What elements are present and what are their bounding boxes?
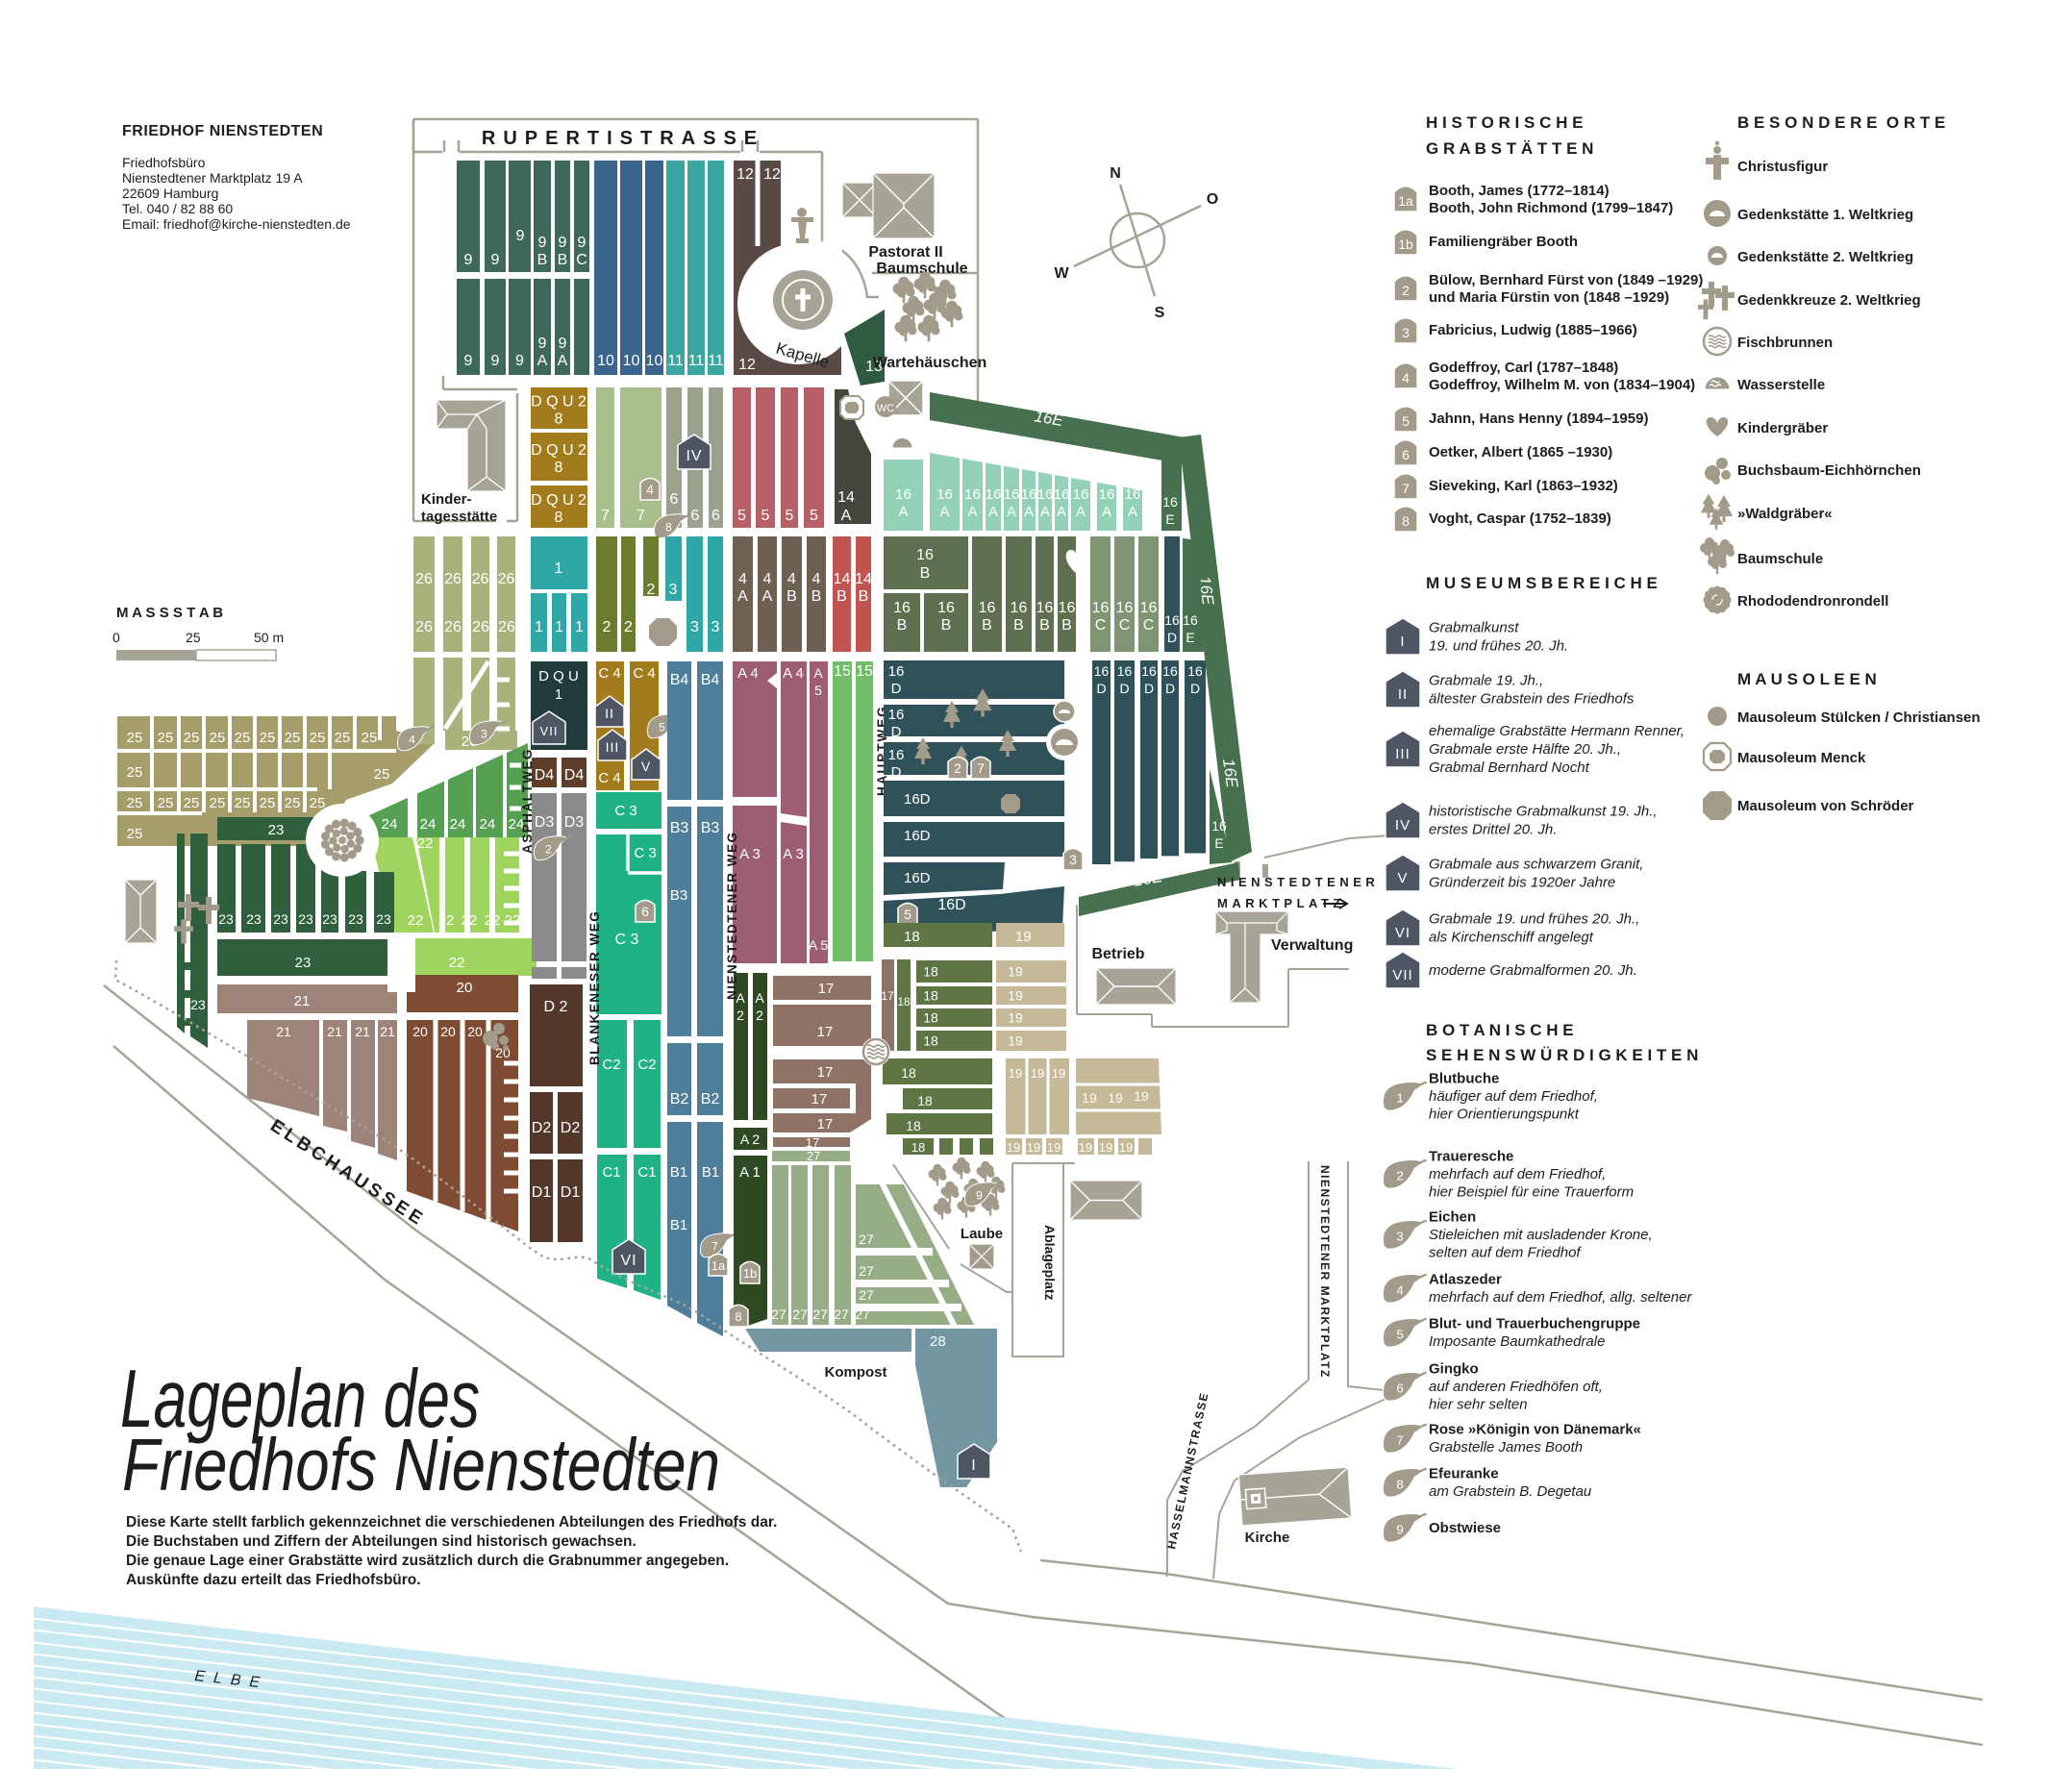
svg-text:23: 23 [298, 911, 313, 927]
svg-text:C: C [576, 252, 587, 268]
svg-text:Obstwiese: Obstwiese [1429, 1520, 1501, 1536]
svg-text:O: O [1207, 191, 1218, 208]
svg-text:10: 10 [623, 353, 640, 369]
svg-text:4: 4 [646, 482, 654, 497]
svg-text:Jahnn, Hans Henny (1894–1959): Jahnn, Hans Henny (1894–1959) [1429, 411, 1648, 427]
svg-text:historistische Grabmalkunst 19: historistische Grabmalkunst 19. Jh., [1429, 804, 1658, 820]
svg-text:M A S S S T A B: M A S S S T A B [116, 605, 223, 621]
svg-text:NIENSTEDTENER WEG: NIENSTEDTENER WEG [725, 831, 739, 1000]
svg-text:26: 26 [498, 619, 515, 635]
svg-text:26: 26 [472, 571, 489, 587]
svg-text:16: 16 [895, 486, 911, 503]
svg-text:Godeffroy, Carl (1787–1848): Godeffroy, Carl (1787–1848) [1429, 360, 1618, 376]
svg-text:24: 24 [420, 816, 437, 833]
svg-text:Booth, John Richmond (1799–184: Booth, John Richmond (1799–1847) [1429, 200, 1673, 216]
svg-text:C2: C2 [602, 1057, 620, 1073]
svg-text:19: 19 [1008, 988, 1023, 1004]
svg-text:1b: 1b [1398, 236, 1413, 252]
svg-text:B2: B2 [701, 1091, 720, 1108]
svg-text:H I S T O R I S C H E: H I S T O R I S C H E [1426, 113, 1583, 132]
svg-text:hier Beispiel für eine Trauerf: hier Beispiel für eine Trauerform [1429, 1183, 1634, 1200]
svg-text:8: 8 [555, 411, 563, 428]
svg-text:C 4: C 4 [598, 770, 620, 786]
svg-text:5: 5 [1402, 413, 1410, 429]
svg-text:9: 9 [976, 1189, 983, 1203]
svg-text:Traueresche: Traueresche [1429, 1148, 1513, 1164]
svg-text:25: 25 [260, 730, 276, 746]
svg-text:B4: B4 [670, 672, 689, 688]
svg-text:III: III [606, 739, 620, 755]
svg-text:16: 16 [1140, 600, 1158, 616]
svg-text:16: 16 [1099, 486, 1115, 503]
svg-text:16: 16 [1125, 486, 1141, 503]
svg-text:18: 18 [917, 1093, 933, 1108]
svg-text:4: 4 [763, 571, 772, 587]
svg-text:A 5: A 5 [809, 937, 828, 953]
svg-text:3: 3 [690, 619, 699, 635]
svg-text:2: 2 [624, 619, 633, 635]
svg-text:25: 25 [235, 795, 251, 811]
svg-text:27: 27 [859, 1287, 874, 1303]
svg-text:A 4: A 4 [783, 665, 804, 682]
svg-text:Auskünfte dazu erteilt das Fri: Auskünfte dazu erteilt das Friedhofsbüro… [126, 1572, 421, 1588]
svg-text:tagesstätte: tagesstätte [421, 509, 497, 525]
svg-text:ASPHALTWEG: ASPHALTWEG [520, 748, 535, 854]
svg-text:B1: B1 [670, 1164, 687, 1181]
svg-text:FRIEDHOF NIENSTEDTEN: FRIEDHOF NIENSTEDTEN [122, 123, 323, 139]
svg-text:D2: D2 [532, 1120, 552, 1136]
svg-text:V: V [1397, 870, 1408, 886]
svg-text:25: 25 [210, 730, 226, 746]
svg-text:Wartehäuschen: Wartehäuschen [873, 355, 987, 371]
svg-text:26: 26 [415, 571, 433, 587]
svg-text:6: 6 [711, 508, 720, 524]
svg-text:25: 25 [184, 795, 200, 811]
svg-text:6: 6 [1396, 1381, 1403, 1396]
svg-text:B: B [1061, 617, 1072, 634]
svg-text:0: 0 [112, 630, 120, 645]
svg-text:16: 16 [1187, 663, 1203, 679]
svg-text:Imposante Baumkathedrale: Imposante Baumkathedrale [1429, 1333, 1605, 1350]
svg-text:3: 3 [1396, 1230, 1403, 1244]
svg-text:22: 22 [462, 912, 478, 929]
svg-text:B: B [1039, 617, 1050, 634]
svg-text:25: 25 [335, 730, 351, 746]
svg-text:16: 16 [1037, 486, 1054, 503]
svg-text:23: 23 [246, 911, 262, 927]
svg-text:9: 9 [464, 353, 473, 369]
svg-text:C 4: C 4 [598, 665, 620, 682]
svg-text:21: 21 [355, 1024, 370, 1039]
svg-text:16: 16 [888, 707, 905, 723]
svg-text:25: 25 [374, 766, 390, 783]
svg-text:19: 19 [1031, 1066, 1044, 1081]
svg-text:27: 27 [807, 1149, 820, 1163]
svg-text:A: A [755, 990, 764, 1006]
svg-text:9: 9 [491, 353, 500, 369]
svg-text:17: 17 [817, 1064, 834, 1081]
svg-text:Sieveking, Karl (1863–1932): Sieveking, Karl (1863–1932) [1429, 478, 1618, 494]
svg-text:II: II [605, 706, 614, 721]
svg-text:selten auf dem Friedhof: selten auf dem Friedhof [1429, 1244, 1582, 1260]
svg-text:D3: D3 [535, 814, 555, 831]
svg-text:Kinder-: Kinder- [421, 491, 472, 508]
svg-text:Grabstelle James Booth: Grabstelle James Booth [1429, 1439, 1583, 1456]
svg-text:2: 2 [545, 843, 552, 857]
svg-text:23: 23 [190, 997, 206, 1012]
svg-text:9: 9 [464, 252, 473, 268]
svg-text:15: 15 [856, 663, 873, 680]
svg-text:E: E [1186, 630, 1194, 645]
svg-text:19: 19 [1009, 1066, 1022, 1081]
svg-text:28: 28 [930, 1333, 946, 1350]
svg-text:WC: WC [877, 403, 894, 414]
svg-text:9: 9 [559, 235, 567, 251]
svg-text:A: A [1007, 504, 1016, 520]
svg-text:24: 24 [480, 816, 496, 833]
svg-text:C 3: C 3 [634, 845, 656, 861]
svg-text:2: 2 [603, 619, 612, 635]
svg-text:A: A [967, 504, 977, 520]
svg-text:hier Orientierungspunkt: hier Orientierungspunkt [1429, 1106, 1580, 1122]
svg-text:M U S E U M S B E R E I C H E: M U S E U M S B E R E I C H E [1426, 574, 1658, 592]
svg-text:16: 16 [916, 547, 934, 563]
svg-text:A 4: A 4 [737, 665, 759, 682]
svg-text:19: 19 [1119, 1140, 1133, 1155]
svg-text:25: 25 [186, 630, 201, 645]
svg-text:16: 16 [1141, 663, 1157, 679]
svg-text:18: 18 [923, 1033, 938, 1049]
svg-text:C: C [1095, 617, 1107, 634]
svg-text:14: 14 [855, 571, 872, 587]
svg-text:Grabmale 19. und frühes 20. Jh: Grabmale 19. und frühes 20. Jh., [1429, 911, 1639, 928]
svg-text:3: 3 [711, 619, 720, 635]
svg-text:8: 8 [555, 510, 563, 526]
svg-text:19: 19 [1008, 964, 1023, 980]
svg-text:2: 2 [1402, 283, 1410, 298]
svg-text:22: 22 [438, 912, 455, 929]
svg-text:B3: B3 [701, 820, 720, 836]
svg-text:11: 11 [688, 353, 705, 369]
svg-text:ehemalige Grabstätte Hermann R: ehemalige Grabstätte Hermann Renner, [1429, 723, 1685, 739]
svg-text:Die Buchstaben und Ziffern der: Die Buchstaben und Ziffern der Abteilung… [126, 1533, 637, 1550]
svg-text:Rhododendronrondell: Rhododendronrondell [1737, 593, 1888, 610]
svg-text:1: 1 [555, 686, 562, 703]
svg-text:3: 3 [481, 728, 487, 741]
svg-text:Booth, James (1772–1814): Booth, James (1772–1814) [1429, 183, 1610, 199]
svg-text:20: 20 [467, 1024, 483, 1039]
svg-text:RUPERTISTRASSE: RUPERTISTRASSE [482, 128, 764, 149]
svg-text:M A U S O L E E N: M A U S O L E E N [1737, 670, 1877, 688]
svg-text:Buchsbaum-Eichhörnchen: Buchsbaum-Eichhörnchen [1737, 462, 1921, 479]
svg-text:2: 2 [756, 1008, 763, 1023]
svg-text:D: D [891, 724, 902, 740]
svg-text:2: 2 [1396, 1169, 1403, 1183]
svg-text:25: 25 [310, 730, 326, 746]
svg-text:D4: D4 [535, 767, 555, 784]
svg-text:25: 25 [235, 730, 251, 746]
svg-text:23: 23 [268, 822, 285, 838]
svg-text:B: B [836, 588, 847, 605]
svg-text:B2: B2 [670, 1091, 689, 1108]
svg-text:1a: 1a [1398, 193, 1413, 209]
svg-text:19: 19 [1015, 929, 1032, 945]
svg-text:27: 27 [834, 1307, 849, 1322]
svg-text:3: 3 [669, 582, 678, 598]
svg-text:B1: B1 [702, 1164, 719, 1181]
svg-text:16: 16 [1164, 612, 1180, 628]
svg-text:II: II [1398, 686, 1408, 703]
svg-text:1: 1 [575, 619, 584, 635]
svg-text:»Waldgräber«: »Waldgräber« [1737, 506, 1833, 522]
svg-text:18: 18 [906, 1118, 921, 1133]
svg-text:9: 9 [491, 252, 500, 268]
svg-text:1: 1 [535, 619, 543, 635]
svg-text:17: 17 [806, 1135, 819, 1150]
svg-text:6: 6 [691, 508, 700, 524]
svg-text:D: D [1165, 681, 1175, 696]
svg-text:Kindergräber: Kindergräber [1737, 420, 1828, 436]
svg-text:A: A [1040, 504, 1050, 520]
svg-text:A: A [558, 353, 568, 369]
svg-text:VII: VII [540, 724, 559, 738]
svg-text:Friedhofsbüro: Friedhofsbüro [122, 155, 206, 170]
svg-text:A: A [898, 504, 908, 520]
svg-text:12: 12 [763, 166, 781, 183]
svg-text:23: 23 [322, 911, 337, 927]
svg-text:19: 19 [1079, 1140, 1092, 1155]
svg-text:Eichen: Eichen [1429, 1208, 1476, 1225]
svg-text:G R A B S T Ä T T E N: G R A B S T Ä T T E N [1426, 139, 1593, 158]
svg-text:22609 Hamburg: 22609 Hamburg [122, 186, 218, 201]
svg-text:23: 23 [348, 911, 363, 927]
svg-text:IV: IV [1395, 817, 1410, 834]
svg-text:22: 22 [485, 912, 501, 929]
svg-text:Mausoleum Stülcken / Christian: Mausoleum Stülcken / Christiansen [1737, 709, 1981, 726]
svg-text:C2: C2 [637, 1057, 656, 1073]
svg-text:8: 8 [735, 1309, 741, 1324]
svg-text:Die genaue Lage einer Grabstät: Die genaue Lage einer Grabstätte wird zu… [126, 1553, 729, 1569]
svg-text:Kompost: Kompost [825, 1364, 887, 1381]
svg-text:Mausoleum von Schröder: Mausoleum von Schröder [1737, 798, 1914, 814]
svg-text:25: 25 [310, 795, 326, 811]
svg-text:BLANKENESER WEG: BLANKENESER WEG [587, 910, 602, 1065]
svg-text:Diese Karte stellt farblich ge: Diese Karte stellt farblich gekennzeichn… [126, 1514, 777, 1531]
svg-text:NIENSTEDTENER: NIENSTEDTENER [1217, 875, 1379, 889]
svg-text:8: 8 [1396, 1478, 1403, 1492]
svg-text:16D: 16D [937, 897, 965, 913]
svg-text:Tel. 040 / 82 88 60: Tel. 040 / 82 88 60 [122, 201, 233, 216]
svg-text:D1: D1 [561, 1184, 581, 1201]
svg-text:27: 27 [792, 1307, 808, 1322]
svg-text:16: 16 [1183, 612, 1198, 628]
svg-text:9: 9 [538, 336, 547, 352]
svg-text:5: 5 [786, 508, 794, 524]
svg-text:5: 5 [814, 683, 822, 698]
svg-text:Rose »Königin von Dänemark«: Rose »Königin von Dänemark« [1429, 1422, 1641, 1438]
svg-text:19: 19 [1082, 1090, 1097, 1106]
svg-text:D3: D3 [564, 814, 585, 831]
svg-text:18: 18 [897, 995, 911, 1008]
svg-text:Blutbuche: Blutbuche [1429, 1070, 1499, 1086]
svg-text:Familiengräber Booth: Familiengräber Booth [1429, 234, 1578, 250]
svg-text:A 3: A 3 [739, 846, 761, 862]
svg-text:A: A [1057, 504, 1066, 520]
svg-text:Wasserstelle: Wasserstelle [1737, 377, 1825, 393]
svg-text:B: B [1013, 617, 1024, 634]
svg-text:16: 16 [893, 600, 911, 616]
svg-text:erstes Drittel 20. Jh.: erstes Drittel 20. Jh. [1429, 822, 1557, 838]
svg-text:19: 19 [1134, 1088, 1149, 1104]
svg-text:17: 17 [817, 1116, 834, 1132]
svg-text:19: 19 [1047, 1140, 1061, 1155]
svg-text:D: D [1096, 681, 1106, 696]
svg-text:Gründerzeit bis 1920er Jahre: Gründerzeit bis 1920er Jahre [1429, 875, 1615, 891]
svg-text:5: 5 [904, 907, 911, 922]
svg-text:3: 3 [1069, 852, 1077, 867]
svg-text:16: 16 [1011, 600, 1028, 616]
svg-text:25: 25 [285, 795, 301, 811]
svg-text:Efeuranke: Efeuranke [1429, 1466, 1499, 1482]
svg-text:18: 18 [923, 1010, 938, 1026]
svg-text:S: S [1155, 305, 1165, 321]
svg-text:Verwaltung: Verwaltung [1271, 937, 1353, 954]
svg-text:E: E [1214, 835, 1223, 851]
svg-text:23: 23 [295, 955, 312, 971]
svg-text:16: 16 [888, 663, 905, 680]
svg-text:B: B [941, 617, 952, 634]
svg-text:14: 14 [834, 571, 851, 587]
svg-text:2: 2 [954, 760, 961, 776]
svg-text:25: 25 [127, 795, 143, 811]
svg-text:D: D [1144, 681, 1154, 696]
svg-text:12: 12 [736, 166, 754, 183]
svg-text:16: 16 [1117, 663, 1133, 679]
svg-text:N: N [1110, 165, 1121, 182]
svg-text:Email: friedhof@kirche-nienste: Email: friedhof@kirche-nienstedten.de [122, 216, 351, 232]
svg-text:3: 3 [1402, 325, 1410, 340]
svg-text:Gedenkstätte 2. Weltkrieg: Gedenkstätte 2. Weltkrieg [1737, 249, 1913, 265]
svg-text:25: 25 [127, 730, 143, 746]
svg-text:27: 27 [859, 1232, 874, 1247]
svg-text:19: 19 [1052, 1066, 1065, 1081]
svg-text:C1: C1 [602, 1164, 620, 1181]
svg-text:Grabmale erste Hälfte 20. Jh.,: Grabmale erste Hälfte 20. Jh., [1429, 741, 1621, 758]
svg-text:Betrieb: Betrieb [1091, 946, 1144, 962]
svg-text:A: A [537, 353, 548, 369]
svg-text:A: A [841, 508, 852, 524]
svg-text:9: 9 [515, 353, 524, 369]
svg-text:18: 18 [923, 988, 938, 1004]
svg-text:25: 25 [127, 826, 143, 842]
svg-text:Voght, Caspar (1752–1839): Voght, Caspar (1752–1839) [1429, 510, 1611, 527]
svg-text:Friedhofs Nienstedten: Friedhofs Nienstedten [122, 1424, 720, 1506]
svg-text:27: 27 [812, 1307, 828, 1322]
svg-text:D: D [1190, 681, 1200, 696]
svg-text:1: 1 [555, 560, 563, 577]
svg-text:Kirche: Kirche [1245, 1530, 1290, 1546]
svg-text:D2: D2 [561, 1120, 581, 1136]
svg-text:25: 25 [362, 730, 378, 746]
svg-text:12: 12 [738, 357, 756, 373]
svg-text:26: 26 [444, 619, 462, 635]
svg-text:A 3: A 3 [783, 846, 804, 862]
svg-text:20: 20 [457, 980, 473, 996]
svg-text:16D: 16D [904, 870, 931, 886]
svg-text:22: 22 [408, 912, 424, 929]
svg-text:B4: B4 [701, 672, 720, 688]
svg-text:9: 9 [516, 228, 525, 244]
svg-text:E: E [1165, 511, 1174, 527]
svg-text:26: 26 [415, 619, 433, 635]
svg-text:A 2: A 2 [740, 1132, 760, 1147]
svg-text:23: 23 [376, 911, 391, 927]
svg-text:27: 27 [855, 1307, 870, 1322]
svg-text:Baumschule: Baumschule [1737, 551, 1823, 567]
svg-text:4: 4 [409, 734, 415, 747]
svg-text:W: W [1054, 265, 1069, 282]
svg-text:IV: IV [686, 448, 702, 464]
svg-text:17: 17 [881, 989, 894, 1003]
svg-text:16: 16 [1054, 486, 1070, 503]
svg-text:B: B [859, 588, 869, 605]
svg-text:7: 7 [637, 508, 645, 524]
svg-text:24: 24 [382, 791, 398, 808]
svg-text:4: 4 [787, 571, 796, 587]
svg-text:19. und frühes 20. Jh.: 19. und frühes 20. Jh. [1429, 638, 1568, 655]
svg-text:1: 1 [1396, 1091, 1403, 1106]
svg-text:14: 14 [837, 489, 855, 506]
svg-text:Blut- und Trauerbuchengruppe: Blut- und Trauerbuchengruppe [1429, 1316, 1640, 1332]
svg-text:7: 7 [1396, 1433, 1403, 1448]
svg-text:25: 25 [158, 795, 174, 811]
svg-text:19: 19 [1007, 1140, 1020, 1155]
svg-text:24: 24 [382, 816, 398, 833]
svg-text:A: A [762, 588, 773, 605]
svg-text:1b: 1b [743, 1266, 757, 1281]
svg-text:5: 5 [810, 508, 818, 524]
svg-text:A: A [813, 665, 823, 681]
svg-text:17: 17 [817, 1024, 834, 1040]
svg-text:ältester Grabstein des Friedho: ältester Grabstein des Friedhofs [1429, 691, 1635, 708]
svg-text:15: 15 [834, 663, 851, 680]
svg-text:8: 8 [1402, 513, 1410, 529]
svg-text:D Q U 2: D Q U 2 [531, 442, 587, 459]
svg-text:16: 16 [979, 600, 996, 616]
svg-text:D1: D1 [532, 1184, 552, 1201]
svg-text:2: 2 [736, 1008, 744, 1023]
svg-text:am Grabstein B. Degetau: am Grabstein B. Degetau [1429, 1483, 1592, 1500]
svg-text:16: 16 [888, 747, 905, 763]
svg-text:B3: B3 [670, 820, 689, 836]
svg-text:B: B [786, 588, 797, 605]
svg-text:8: 8 [555, 460, 563, 476]
svg-text:16: 16 [1116, 600, 1134, 616]
svg-text:16: 16 [1162, 663, 1178, 679]
svg-text:4: 4 [812, 571, 821, 587]
svg-text:25: 25 [127, 764, 143, 781]
svg-text:21: 21 [294, 993, 311, 1009]
svg-text:als Kirchenschiff angelegt: als Kirchenschiff angelegt [1429, 930, 1594, 946]
svg-text:18: 18 [901, 1065, 916, 1081]
svg-text:4: 4 [1396, 1283, 1403, 1298]
svg-text:C: C [1119, 617, 1131, 634]
svg-text:20: 20 [440, 1024, 456, 1039]
svg-text:5: 5 [737, 508, 746, 524]
svg-text:19: 19 [1108, 1090, 1123, 1106]
svg-text:Pastorat II: Pastorat II [868, 244, 942, 261]
svg-text:mehrfach auf dem Friedhof, all: mehrfach auf dem Friedhof, allg. seltene… [1429, 1289, 1692, 1306]
